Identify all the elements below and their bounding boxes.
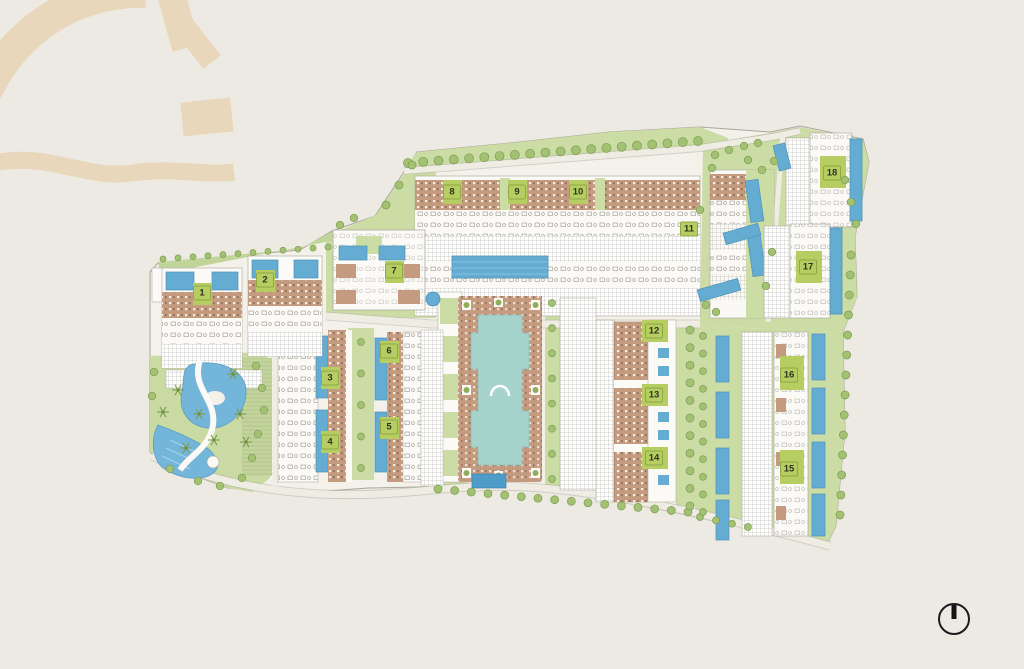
building-marker-3[interactable]: 3 bbox=[321, 371, 339, 386]
building-marker-12[interactable]: 12 bbox=[645, 324, 663, 339]
compass-needle bbox=[952, 605, 957, 619]
building-marker-8[interactable]: 8 bbox=[443, 185, 461, 200]
building-marker-9[interactable]: 9 bbox=[508, 185, 526, 200]
masterplan-canvas: 123456789101112131415161718 bbox=[0, 0, 1024, 669]
building-marker-14[interactable]: 14 bbox=[645, 451, 663, 466]
building-marker-13[interactable]: 13 bbox=[645, 388, 663, 403]
building-marker-11[interactable]: 11 bbox=[680, 222, 698, 237]
building-marker-10[interactable]: 10 bbox=[569, 185, 587, 200]
building-marker-1[interactable]: 1 bbox=[193, 286, 211, 301]
building-marker-2[interactable]: 2 bbox=[256, 273, 274, 288]
building-marker-7[interactable]: 7 bbox=[385, 264, 403, 279]
north-compass-icon bbox=[938, 603, 970, 635]
building-marker-16[interactable]: 16 bbox=[780, 368, 798, 383]
building-marker-5[interactable]: 5 bbox=[380, 420, 398, 435]
building-markers-layer: 123456789101112131415161718 bbox=[0, 0, 1024, 669]
building-marker-17[interactable]: 17 bbox=[799, 260, 817, 275]
building-marker-4[interactable]: 4 bbox=[321, 435, 339, 450]
building-marker-6[interactable]: 6 bbox=[380, 344, 398, 359]
building-marker-18[interactable]: 18 bbox=[823, 166, 841, 181]
building-marker-15[interactable]: 15 bbox=[780, 462, 798, 477]
